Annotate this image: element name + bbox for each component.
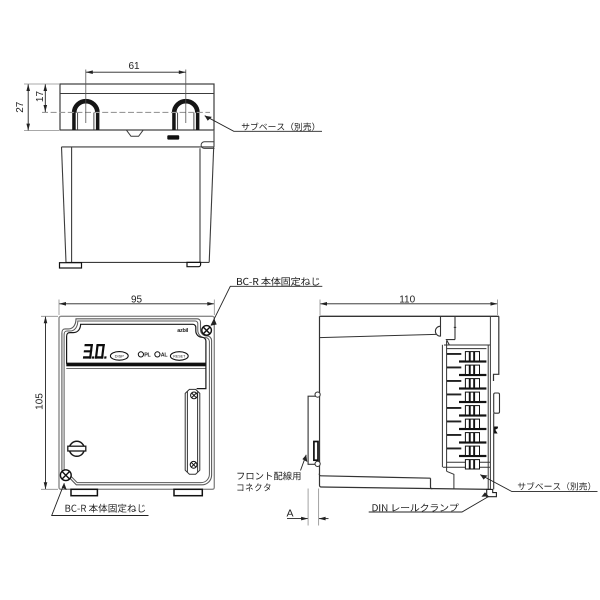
svg-text:PL: PL [144, 353, 151, 359]
svg-text:27: 27 [15, 101, 26, 113]
svg-text:95: 95 [131, 294, 143, 305]
svg-text:RESET: RESET [173, 354, 186, 358]
svg-text:AL: AL [161, 353, 169, 359]
svg-text:105: 105 [34, 393, 45, 410]
svg-text:azbil: azbil [177, 328, 188, 334]
svg-text:17: 17 [35, 91, 46, 103]
svg-text:61: 61 [128, 61, 140, 72]
svg-text:DISP: DISP [115, 353, 125, 358]
svg-text:110: 110 [399, 294, 415, 305]
svg-text:A: A [286, 508, 293, 520]
